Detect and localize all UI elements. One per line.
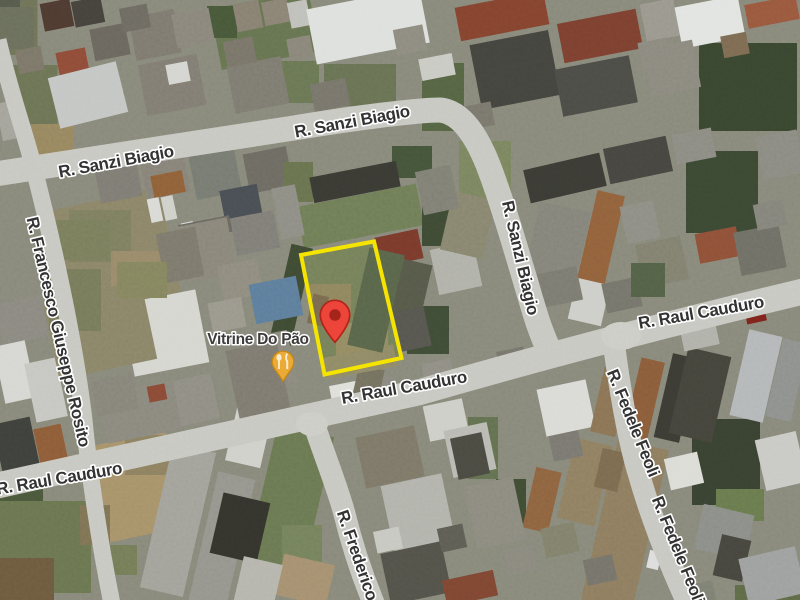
- svg-text:Vitrine Do Pão: Vitrine Do Pão: [207, 331, 308, 348]
